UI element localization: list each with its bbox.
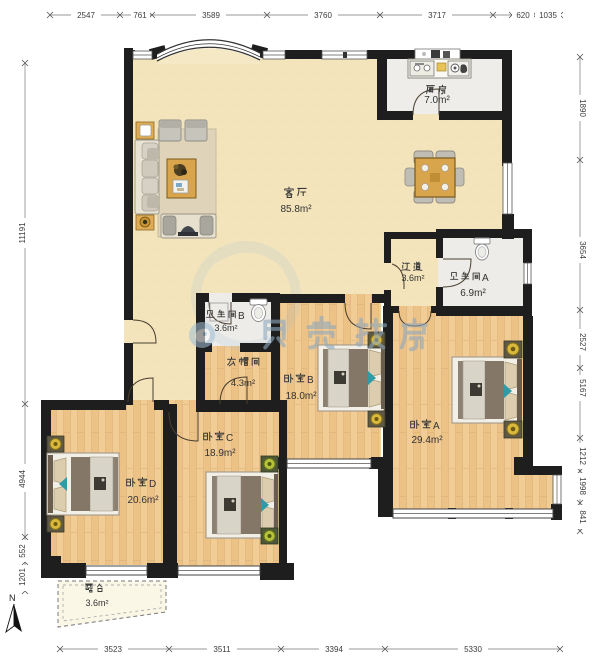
svg-text:2527: 2527 — [578, 333, 587, 351]
svg-text:7.0m²: 7.0m² — [424, 95, 450, 106]
svg-text:3.6m²: 3.6m² — [401, 273, 424, 283]
svg-text:11191: 11191 — [18, 222, 27, 244]
svg-text:85.8m²: 85.8m² — [280, 204, 312, 215]
svg-text:D: D — [149, 479, 156, 490]
svg-text:A: A — [433, 421, 440, 432]
svg-text:1035: 1035 — [539, 11, 557, 20]
svg-text:552: 552 — [18, 544, 27, 558]
svg-text:4.3m²: 4.3m² — [231, 378, 255, 389]
svg-text:3.6m²: 3.6m² — [85, 598, 108, 608]
svg-text:4944: 4944 — [18, 470, 27, 488]
svg-text:18.9m²: 18.9m² — [204, 448, 236, 459]
svg-text:3394: 3394 — [325, 645, 343, 654]
svg-text:761: 761 — [133, 11, 147, 20]
svg-text:841: 841 — [578, 510, 587, 524]
svg-text:20.6m²: 20.6m² — [127, 495, 159, 506]
svg-text:3589: 3589 — [202, 11, 220, 20]
svg-text:B: B — [238, 311, 245, 322]
svg-text:5330: 5330 — [464, 645, 482, 654]
svg-text:6.9m²: 6.9m² — [460, 288, 486, 299]
svg-text:3654: 3654 — [578, 241, 587, 259]
svg-text:B: B — [307, 375, 314, 386]
svg-text:3717: 3717 — [428, 11, 446, 20]
svg-text:3511: 3511 — [213, 645, 231, 654]
svg-text:620: 620 — [516, 11, 530, 20]
svg-text:3760: 3760 — [314, 11, 332, 20]
svg-text:1212: 1212 — [578, 447, 587, 465]
svg-text:3523: 3523 — [104, 645, 122, 654]
svg-text:A: A — [482, 273, 489, 284]
svg-text:C: C — [226, 433, 233, 444]
svg-text:2547: 2547 — [77, 11, 95, 20]
svg-text:1201: 1201 — [18, 568, 27, 586]
svg-text:N: N — [9, 593, 16, 603]
svg-text:1998: 1998 — [578, 477, 587, 495]
svg-text:3.6m²: 3.6m² — [214, 323, 237, 333]
svg-text:1890: 1890 — [578, 99, 587, 117]
svg-text:29.4m²: 29.4m² — [411, 435, 443, 446]
svg-text:5167: 5167 — [578, 379, 587, 397]
svg-text:18.0m²: 18.0m² — [285, 391, 317, 402]
